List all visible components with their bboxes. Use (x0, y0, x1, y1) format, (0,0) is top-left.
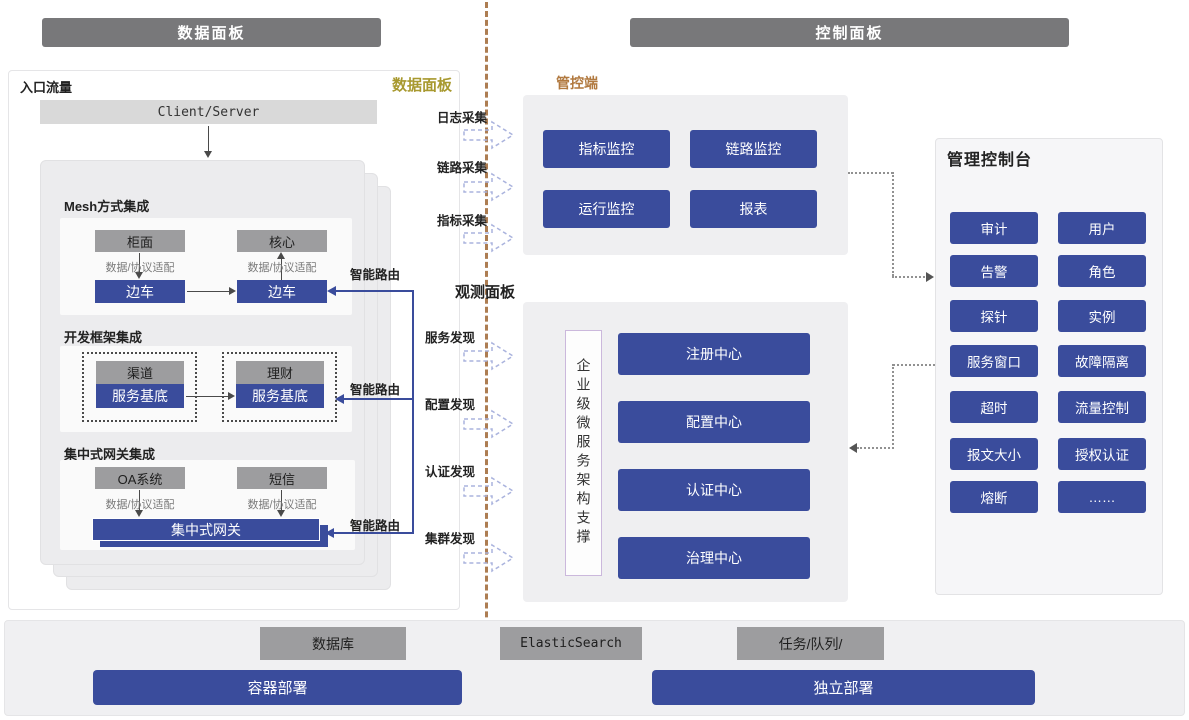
microservice-support-box: 企业级微服务架构支撑 (565, 330, 602, 576)
gateway-bar: 集中式网关 (92, 518, 320, 541)
database-box: 数据库 (260, 627, 406, 660)
center-box-auth: 认证中心 (618, 469, 810, 511)
smart-route-arrow-1 (327, 286, 336, 296)
data-plane-corner-label: 数据面板 (372, 74, 452, 95)
monitor-box-trace: 链路监控 (690, 130, 817, 168)
console-btn-role: 角色 (1058, 255, 1146, 287)
control-endpoint-panel (523, 95, 848, 255)
monitor-box-metrics: 指标监控 (543, 130, 670, 168)
mesh-left-adapter-label: 数据/协议适配 (92, 259, 188, 275)
smart-route-label-2: 智能路由 (350, 379, 400, 398)
mesh-left-sidecar-box: 边车 (95, 280, 185, 303)
gateway-right-service-box: 短信 (237, 467, 327, 489)
sidecar-link-line (187, 291, 231, 292)
console-btn-alert: 告警 (950, 255, 1038, 287)
connector-panel-to-console-h2 (892, 276, 928, 278)
gateway-right-adapter-label: 数据/协议适配 (234, 496, 330, 512)
dashed-arrow-icon (462, 222, 516, 254)
monitor-box-runtime: 运行监控 (543, 190, 670, 228)
smart-route-label-1: 智能路由 (350, 264, 400, 283)
dashed-arrow-icon (462, 408, 516, 440)
container-deploy-bar: 容器部署 (93, 670, 462, 705)
management-console-title: 管理控制台 (947, 146, 1032, 170)
dashed-arrow-icon (462, 542, 516, 574)
framework-left-base-box: 服务基底 (96, 384, 184, 408)
connector-console-to-observe-h1 (893, 364, 935, 366)
console-btn-instance: 实例 (1058, 300, 1146, 332)
dashed-arrow-icon (462, 119, 516, 151)
console-btn-user: 用户 (1058, 212, 1146, 244)
data-plane-header: 数据面板 (42, 18, 381, 47)
mesh-right-arrow-head (277, 252, 285, 259)
center-box-governance: 治理中心 (618, 537, 810, 579)
connector-console-to-observe-h2 (857, 447, 894, 449)
monitor-box-report: 报表 (690, 190, 817, 228)
console-btn-audit: 审计 (950, 212, 1038, 244)
console-btn-fault-isolation: 故障隔离 (1058, 345, 1146, 377)
smart-route-vertical-line (412, 291, 414, 534)
center-box-registry: 注册中心 (618, 333, 810, 375)
elasticsearch-box: ElasticSearch (500, 627, 642, 660)
gateway-left-adapter-label: 数据/协议适配 (92, 496, 188, 512)
smart-route-arrow-3 (325, 528, 334, 538)
microservice-support-label: 企业级微服务架构支撑 (574, 358, 594, 548)
console-btn-circuit-break: 熔断 (950, 481, 1038, 513)
smart-route-branch-2 (342, 398, 414, 400)
dashed-arrow-icon (462, 340, 516, 372)
center-box-config: 配置中心 (618, 401, 810, 443)
smart-route-arrow-2 (335, 394, 344, 404)
gateway-left-service-box: OA系统 (95, 467, 185, 489)
console-btn-flow-control: 流量控制 (1058, 391, 1146, 423)
entry-traffic-label: 入口流量 (20, 77, 72, 96)
dashed-arrow-icon (462, 475, 516, 507)
client-server-box: Client/Server (40, 100, 377, 124)
mesh-section-title: Mesh方式集成 (64, 196, 149, 215)
framework-right-base-box: 服务基底 (236, 384, 324, 408)
framework-link-arrow-head (228, 392, 235, 400)
architecture-diagram: 数据面板 控制面板 入口流量 数据面板 Client/Server Mesh方式… (0, 0, 1189, 720)
control-endpoint-label: 管控端 (556, 73, 598, 93)
connector-console-to-observe-v (892, 364, 894, 449)
framework-right-service-box: 理财 (236, 361, 324, 384)
mesh-right-sidecar-box: 边车 (237, 280, 327, 303)
task-queue-box: 任务/队列/ (737, 627, 884, 660)
observe-plane-label: 观测面板 (455, 281, 515, 302)
mesh-left-service-box: 柜面 (95, 230, 185, 252)
console-btn-authorization: 授权认证 (1058, 438, 1146, 470)
console-btn-probe: 探针 (950, 300, 1038, 332)
connector-panel-to-console-arrow (926, 272, 934, 282)
mesh-right-adapter-label: 数据/协议适配 (234, 259, 330, 275)
connector-panel-to-console-v (892, 172, 894, 276)
mesh-right-service-box: 核心 (237, 230, 327, 252)
console-btn-timeout: 超时 (950, 391, 1038, 423)
smart-route-branch-3 (332, 532, 414, 534)
connector-panel-to-console-h1 (848, 172, 893, 174)
framework-left-service-box: 渠道 (96, 361, 184, 384)
dashed-arrow-icon (462, 171, 516, 203)
smart-route-branch-1 (334, 290, 414, 292)
connector-console-to-observe-arrow (849, 443, 857, 453)
console-btn-more: …… (1058, 481, 1146, 513)
control-plane-header: 控制面板 (630, 18, 1069, 47)
sidecar-link-arrow-head (229, 287, 236, 295)
client-server-arrow-head (204, 151, 212, 158)
standalone-deploy-bar: 独立部署 (652, 670, 1035, 705)
console-btn-service-window: 服务窗口 (950, 345, 1038, 377)
client-server-arrow-line (208, 126, 209, 153)
console-btn-message-size: 报文大小 (950, 438, 1038, 470)
framework-section-title: 开发框架集成 (64, 327, 142, 346)
framework-link-line (186, 396, 230, 397)
